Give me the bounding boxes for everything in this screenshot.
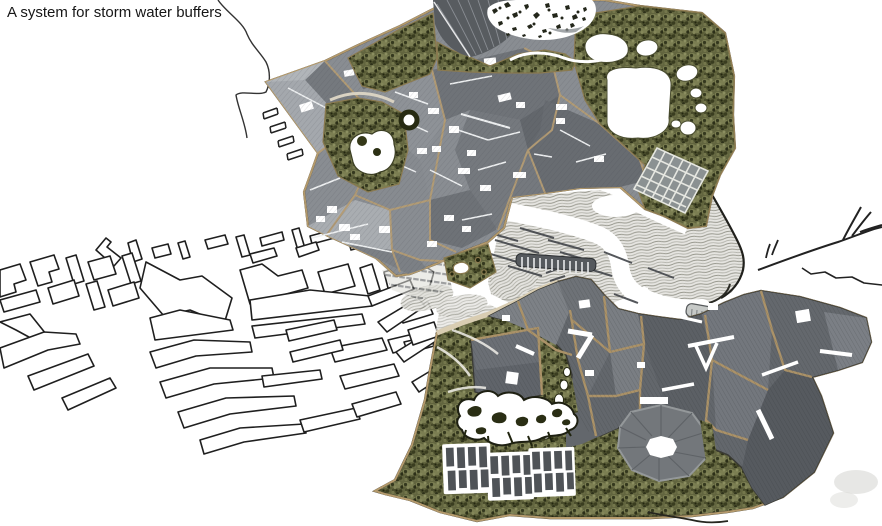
svg-text:A system for storm water buffe: A system for storm water buffers: [7, 4, 222, 21]
